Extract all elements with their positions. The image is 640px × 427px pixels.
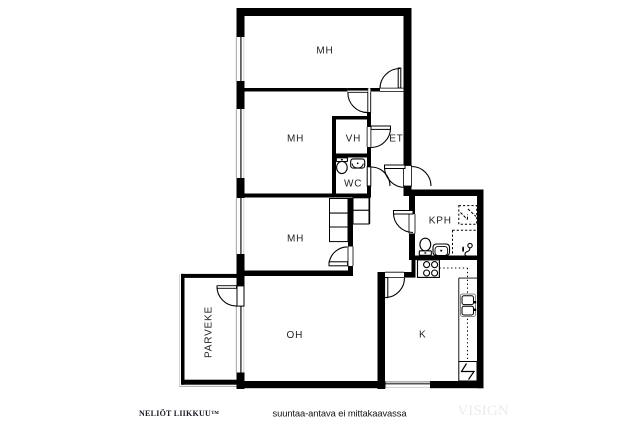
svg-text:VH: VH xyxy=(346,134,362,145)
svg-text:MH: MH xyxy=(287,134,304,145)
svg-text:WC: WC xyxy=(344,179,362,190)
svg-text:K: K xyxy=(419,330,426,341)
svg-text:ET: ET xyxy=(389,134,403,145)
svg-text:MH: MH xyxy=(287,234,304,245)
svg-text:suuntaa-antava ei mittakaavass: suuntaa-antava ei mittakaavassa xyxy=(273,407,408,418)
svg-text:NELIÖT LIIKKUU™: NELIÖT LIIKKUU™ xyxy=(139,409,219,418)
svg-text:MH: MH xyxy=(316,46,333,57)
svg-text:PARVEKE: PARVEKE xyxy=(204,306,215,358)
svg-text:KPH: KPH xyxy=(429,216,452,227)
svg-text:VISIGN: VISIGN xyxy=(457,402,508,419)
svg-text:OH: OH xyxy=(287,330,304,341)
